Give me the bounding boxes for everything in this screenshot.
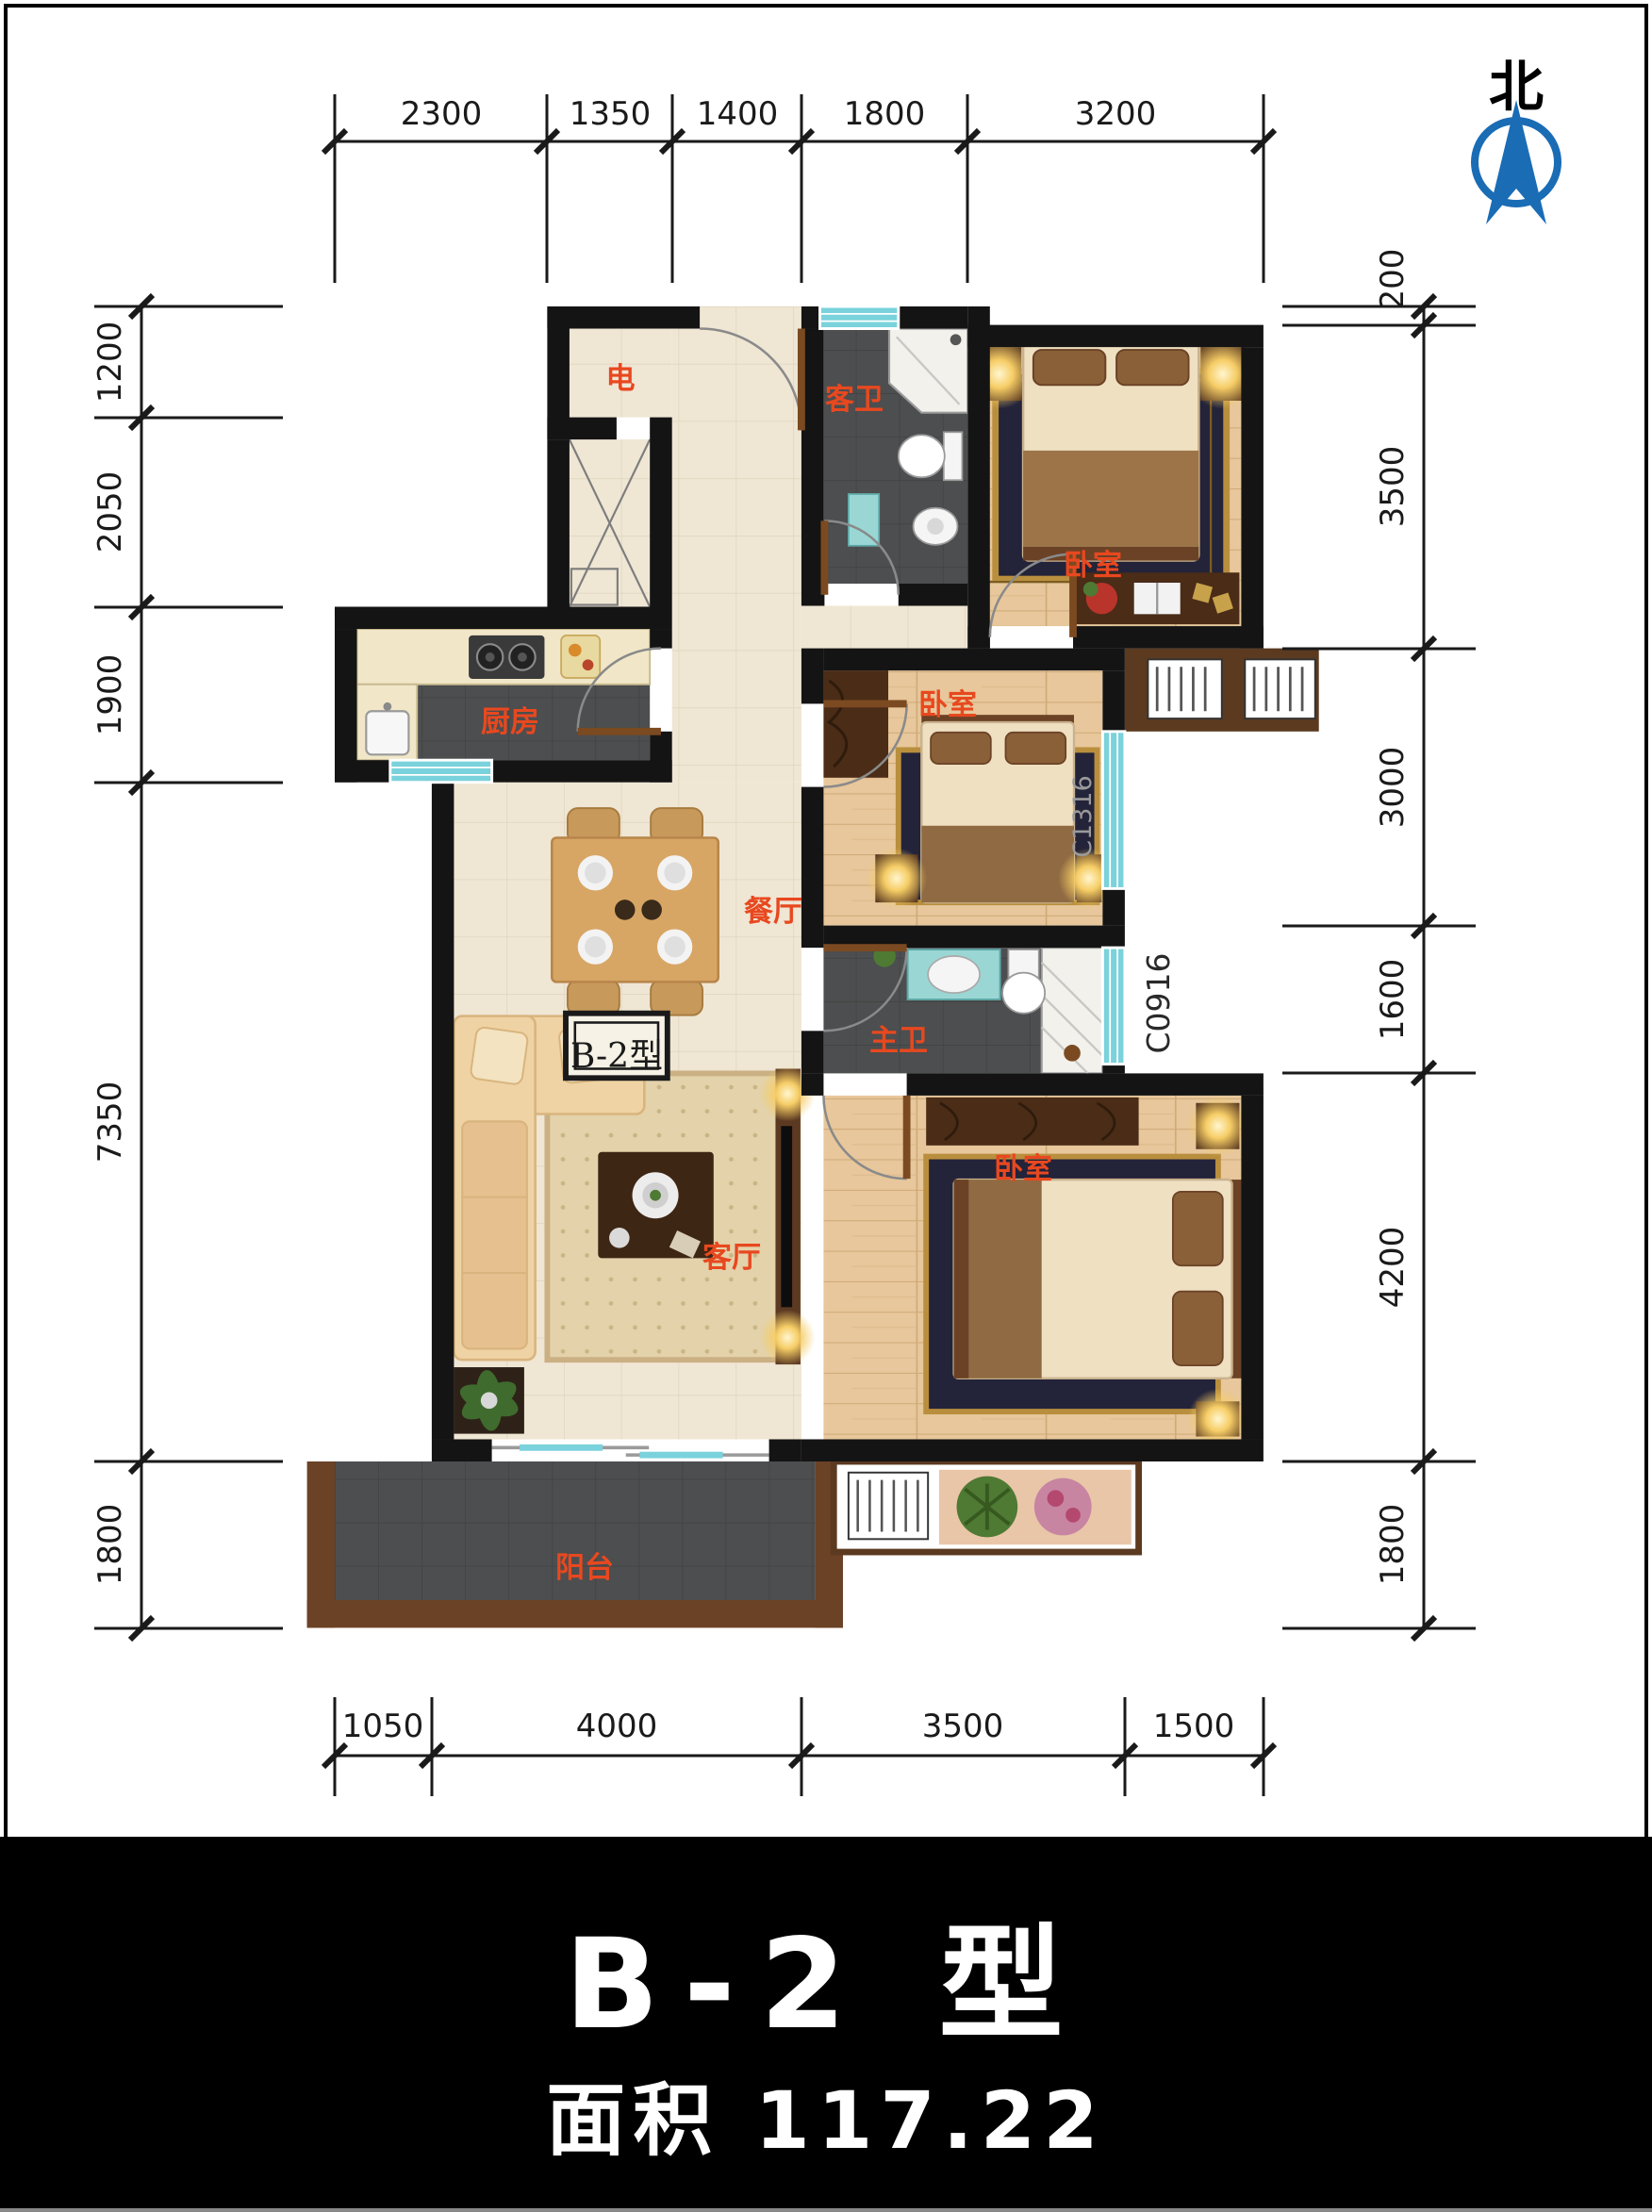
- footer-banner: B-2 型 面积 117.22: [0, 1837, 1652, 2208]
- room-label-bedroom-top: 卧室: [1064, 549, 1122, 583]
- dim-bottom-1: 4000: [576, 1708, 658, 1745]
- room-label-bedroom-mid: 卧室: [918, 688, 977, 722]
- room-label-living: 客厅: [702, 1241, 761, 1275]
- dim-left-1: 2050: [91, 471, 129, 553]
- dim-top-0: 2300: [401, 95, 483, 133]
- room-label-kitchen: 厨房: [481, 705, 539, 739]
- floor-plan-canvas: 2300 1350 1400 1800 3200 1050 4000 3500 …: [0, 0, 1652, 2208]
- dim-top-3: 1800: [844, 95, 926, 133]
- unit-tag-text: B-2型: [570, 1037, 663, 1076]
- room-label-balcony: 阳台: [555, 1551, 614, 1585]
- dim-left-0: 1200: [91, 322, 129, 404]
- dim-left-3: 7350: [91, 1081, 129, 1164]
- room-label-guest-bath: 客卫: [825, 383, 884, 417]
- balcony-sliding-door: [492, 1444, 769, 1459]
- dim-bottom-3: 1500: [1153, 1708, 1235, 1745]
- ac-ledge-right: [1125, 649, 1319, 732]
- room-label-master-bath: 主卫: [869, 1024, 928, 1058]
- window-code-c0916: C0916: [1140, 952, 1177, 1053]
- dim-left-2: 1900: [91, 654, 129, 736]
- dim-bottom-0: 1050: [342, 1708, 424, 1745]
- dim-top-4: 3200: [1075, 95, 1157, 133]
- dim-bottom-2: 3500: [922, 1708, 1004, 1745]
- dim-right-3: 1600: [1374, 959, 1412, 1041]
- dim-top-1: 1350: [570, 95, 652, 133]
- dim-right-0: 200: [1374, 249, 1412, 310]
- room-label-electrical: 电: [606, 362, 636, 396]
- dim-left-4: 1800: [91, 1504, 129, 1586]
- dim-top-2: 1400: [697, 95, 779, 133]
- footer-area: 面积 117.22: [546, 2074, 1105, 2167]
- floorplan-page: 2300 1350 1400 1800 3200 1050 4000 3500 …: [0, 0, 1652, 2208]
- footer-title: B-2 型: [564, 1912, 1087, 2057]
- north-compass: 北: [1475, 55, 1558, 224]
- dim-right-1: 3500: [1374, 446, 1412, 528]
- dim-right-5: 1800: [1374, 1504, 1412, 1586]
- dim-right-4: 4200: [1374, 1227, 1412, 1309]
- room-label-dining: 餐厅: [744, 895, 802, 929]
- flowerbed-ledge-bottom: [834, 1461, 1138, 1552]
- room-label-bedroom-bottom: 卧室: [994, 1152, 1052, 1186]
- window-code-c1316: C1316: [1068, 775, 1098, 858]
- dim-right-2: 3000: [1374, 747, 1412, 829]
